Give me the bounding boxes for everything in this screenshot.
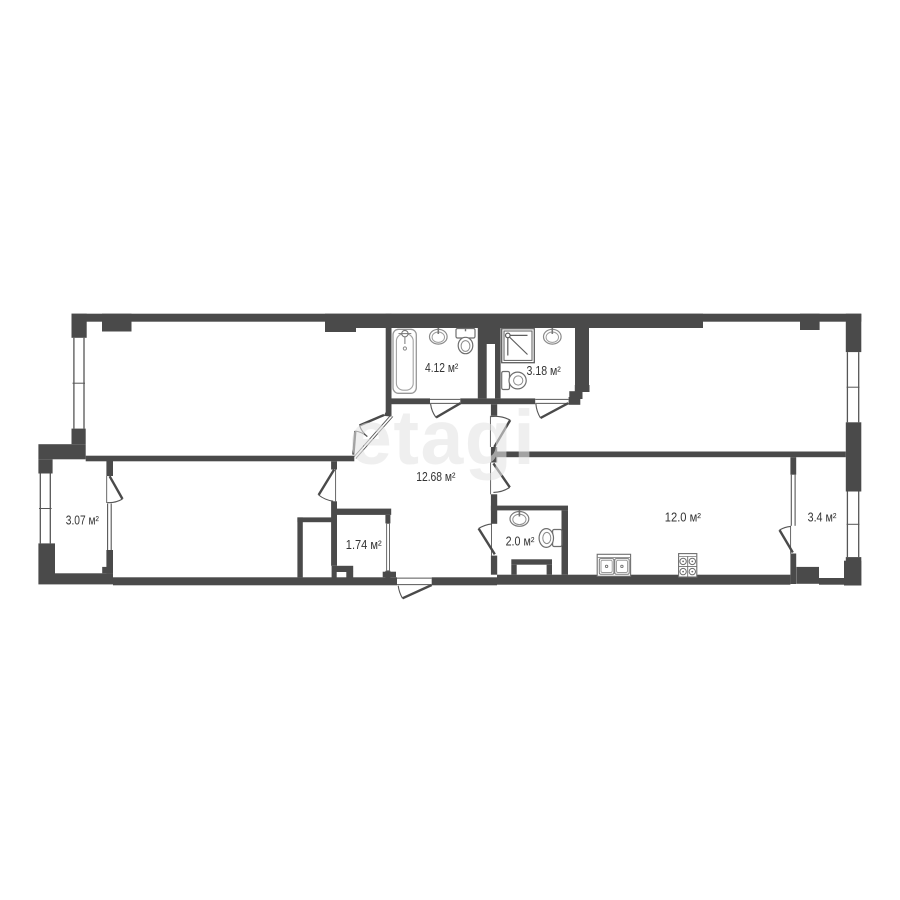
svg-text:4.12 м²: 4.12 м² [425, 360, 459, 375]
svg-text:12.68 м²: 12.68 м² [416, 469, 456, 484]
svg-text:3.4 м²: 3.4 м² [808, 510, 837, 525]
svg-text:12.0 м²: 12.0 м² [665, 510, 702, 525]
svg-text:1.74 м²: 1.74 м² [346, 537, 382, 552]
svg-text:3.07 м²: 3.07 м² [66, 512, 100, 527]
svg-text:2.0 м²: 2.0 м² [506, 534, 535, 549]
svg-text:3.18 м²: 3.18 м² [527, 363, 562, 378]
